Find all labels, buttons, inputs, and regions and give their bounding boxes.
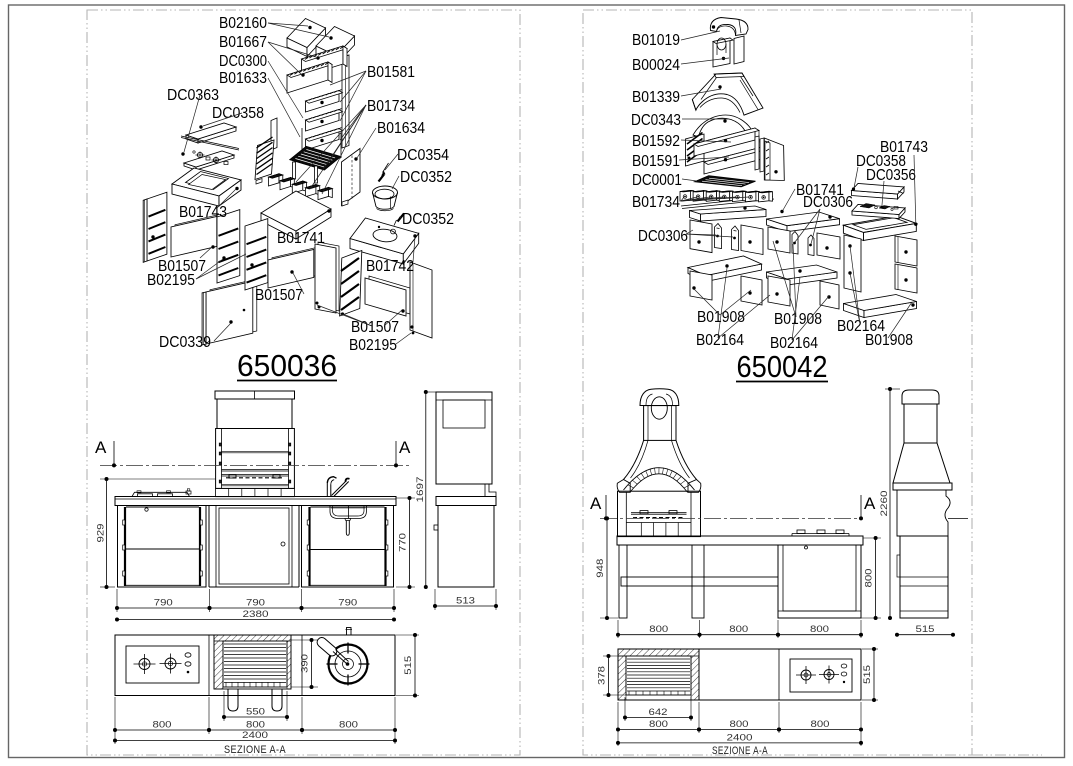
svg-text:DC0354: DC0354	[397, 147, 449, 164]
svg-text:790: 790	[246, 598, 265, 609]
svg-text:790: 790	[338, 598, 357, 609]
svg-text:800: 800	[811, 719, 830, 730]
svg-text:800: 800	[246, 720, 265, 731]
svg-text:B01507: B01507	[351, 319, 399, 336]
svg-text:DC0356: DC0356	[866, 167, 916, 184]
svg-text:B01507: B01507	[255, 287, 303, 304]
svg-text:B01734: B01734	[632, 194, 680, 211]
svg-text:SEZIONE A-A: SEZIONE A-A	[712, 745, 768, 757]
svg-text:B00024: B00024	[632, 57, 680, 74]
svg-text:2400: 2400	[242, 730, 268, 741]
svg-text:DC0300: DC0300	[219, 53, 267, 70]
svg-text:800: 800	[864, 569, 875, 588]
svg-text:642: 642	[649, 707, 668, 718]
svg-text:B01581: B01581	[367, 64, 415, 81]
svg-text:B01633: B01633	[219, 70, 267, 87]
svg-text:B01634: B01634	[377, 120, 425, 137]
svg-text:2380: 2380	[243, 609, 269, 620]
svg-text:B01019: B01019	[632, 32, 680, 49]
svg-text:DC0352: DC0352	[400, 169, 452, 186]
svg-text:513: 513	[456, 596, 475, 607]
svg-text:DC0001: DC0001	[632, 172, 682, 189]
svg-text:550: 550	[246, 707, 265, 718]
svg-text:800: 800	[649, 719, 668, 730]
svg-text:B01741: B01741	[277, 230, 325, 247]
svg-text:B01591: B01591	[632, 153, 680, 170]
svg-text:800: 800	[729, 624, 748, 635]
svg-text:B01743: B01743	[179, 204, 227, 221]
svg-text:B02164: B02164	[696, 332, 744, 349]
svg-text:948: 948	[595, 559, 606, 578]
svg-text:B02160: B02160	[219, 15, 267, 32]
svg-text:A: A	[399, 438, 411, 457]
svg-text:515: 515	[403, 656, 414, 675]
svg-text:DC0352: DC0352	[402, 211, 454, 228]
svg-text:B01908: B01908	[774, 311, 822, 328]
svg-text:515: 515	[916, 624, 935, 635]
svg-text:A: A	[864, 494, 876, 513]
svg-text:B01908: B01908	[865, 332, 913, 349]
svg-text:B01667: B01667	[219, 34, 267, 51]
svg-text:A: A	[590, 494, 602, 513]
svg-text:DC0306: DC0306	[638, 228, 688, 245]
svg-text:650036: 650036	[237, 348, 337, 383]
svg-text:B01592: B01592	[632, 133, 680, 150]
svg-text:800: 800	[810, 624, 829, 635]
svg-text:800: 800	[730, 719, 749, 730]
svg-text:DC0358: DC0358	[212, 105, 264, 122]
svg-text:B01339: B01339	[632, 89, 680, 106]
svg-text:800: 800	[339, 720, 358, 731]
svg-text:378: 378	[597, 666, 608, 685]
svg-text:770: 770	[398, 533, 409, 552]
svg-text:515: 515	[862, 665, 873, 684]
svg-text:B02195: B02195	[349, 337, 397, 354]
svg-text:DC0339: DC0339	[159, 334, 211, 351]
svg-text:A: A	[95, 438, 107, 457]
svg-text:DC0363: DC0363	[167, 87, 219, 104]
svg-text:800: 800	[153, 720, 172, 731]
svg-text:B01908: B01908	[697, 309, 745, 326]
svg-text:2400: 2400	[727, 732, 753, 743]
svg-text:B01742: B01742	[366, 258, 414, 275]
svg-text:650042: 650042	[737, 349, 828, 384]
svg-text:DC0343: DC0343	[631, 112, 681, 129]
svg-text:B02195: B02195	[147, 272, 195, 289]
svg-text:929: 929	[96, 524, 107, 543]
svg-text:390: 390	[300, 654, 311, 673]
svg-text:2260: 2260	[879, 491, 890, 517]
svg-text:SEZIONE A-A: SEZIONE A-A	[224, 744, 286, 756]
svg-text:800: 800	[649, 624, 668, 635]
svg-text:1697: 1697	[415, 477, 426, 503]
svg-text:B01734: B01734	[367, 98, 415, 115]
svg-text:790: 790	[154, 598, 173, 609]
svg-text:DC0306: DC0306	[803, 194, 853, 211]
